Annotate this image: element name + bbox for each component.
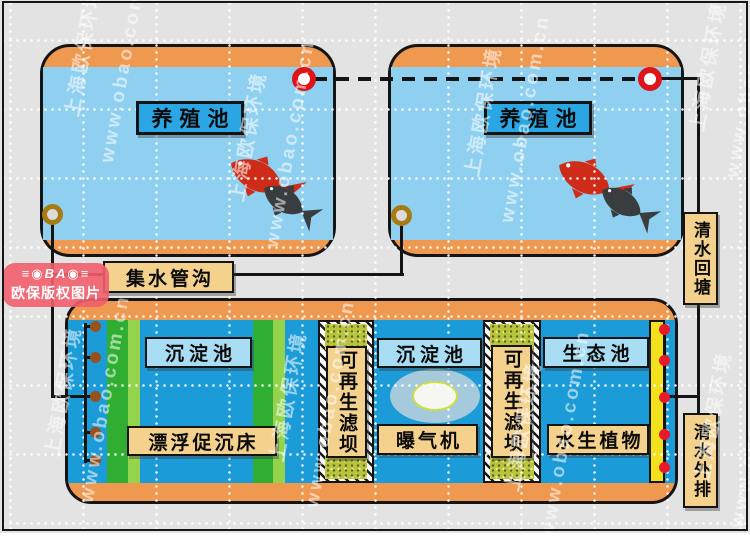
diagram-canvas: 养殖池 养殖池 集水管沟 沉淀池 漂浮促沉床 可再生滤坝 沉淀池 曝气机 可再生… [0,0,750,533]
sedimentation2-label: 沉淀池 [377,338,482,368]
floating-bed-panel [107,320,140,483]
return-line-top [658,77,700,80]
aerator-label: 曝气机 [377,424,478,455]
pond2-label: 养殖池 [484,101,592,135]
copyright-badge: ≡◉BA◉≡ 欧保版权图片 [3,263,109,307]
obao-logo-icon: ≡◉BA◉≡ [3,265,109,283]
outlet-port-dot [659,392,670,403]
inlet-distribution-pipe [84,323,87,463]
copyright-badge-text: 欧保版权图片 [3,283,109,303]
clean-water-return-label: 清水回塘 [683,212,718,305]
pond1-return-ring-icon [292,67,316,91]
outlet-port-dot [659,462,670,473]
treatment-tank [65,298,678,504]
clean-water-discharge-label: 清水外排 [683,413,718,508]
outlet-port-dot [659,429,670,440]
ecological-pond-label: 生态池 [543,337,649,368]
floating-bed-label: 漂浮促沉床 [127,426,277,456]
aerator-icon [390,369,480,423]
pond1-drain-line [51,222,54,398]
filter-dam2-label: 可再生滤坝 [491,345,532,458]
collector-pipe-label: 集水管沟 [103,261,234,293]
aerator-core [412,381,458,411]
inlet-outlet-dot [90,455,101,466]
tank-outlet-line [665,395,700,398]
aquatic-plants-label: 水生植物 [547,424,649,455]
outlet-port-dot [659,324,670,335]
filter-dam1-label: 可再生滤坝 [326,346,367,458]
inlet-outlet-dot [90,427,101,438]
sedimentation1-label: 沉淀池 [145,337,252,368]
inlet-outlet-dot [90,352,101,363]
pond1-drain-ring-icon [42,204,63,225]
pond2-return-ring-icon [638,67,662,91]
pond1-label: 养殖池 [136,101,244,135]
pond2-drain-line [400,222,403,275]
outlet-port-dot [659,355,670,366]
inlet-outlet-dot [90,321,101,332]
return-water-dashed-line [314,77,641,81]
inlet-outlet-dot [90,391,101,402]
return-line-vertical [697,77,700,214]
pond2-drain-ring-icon [391,205,412,226]
floating-bed-panel [253,320,285,483]
